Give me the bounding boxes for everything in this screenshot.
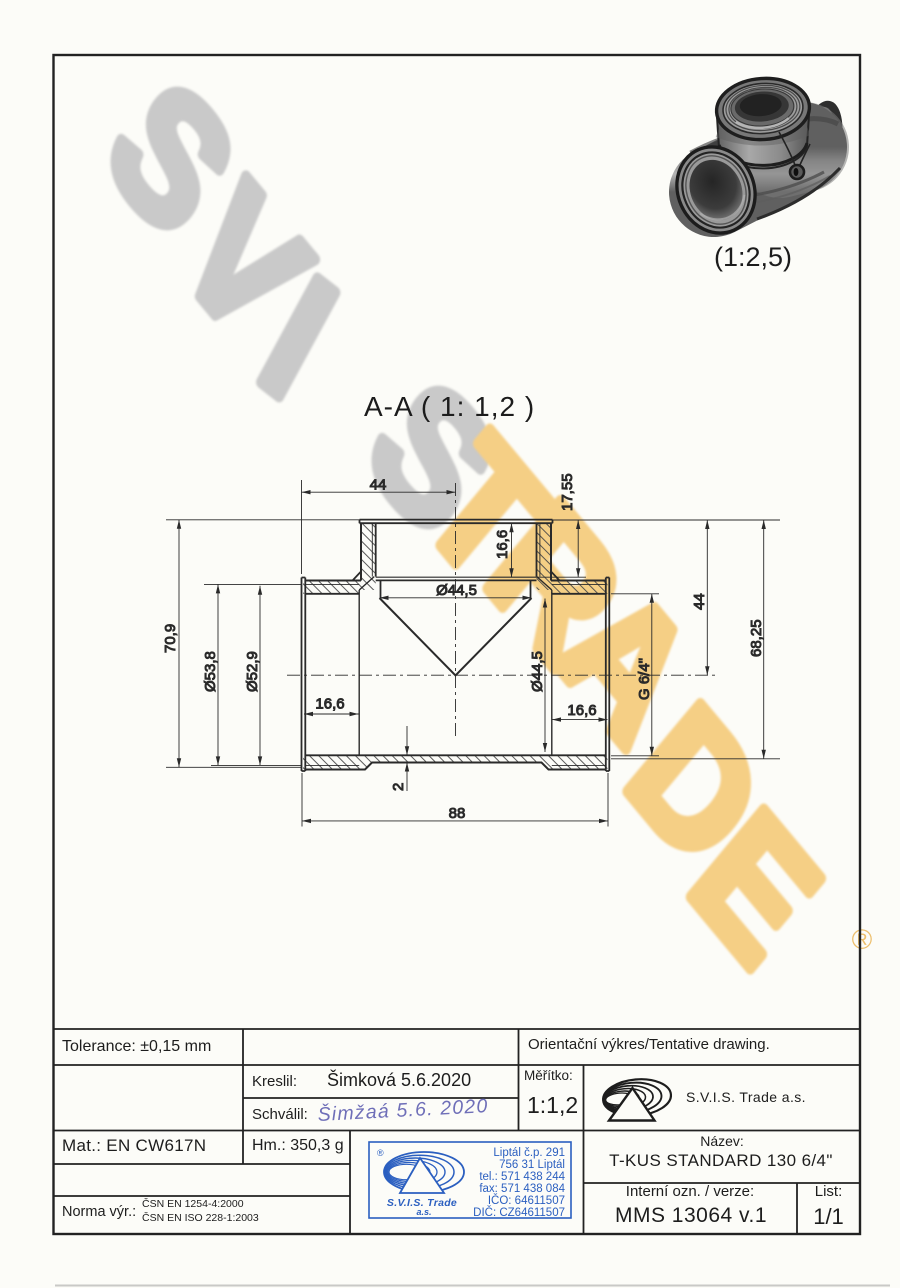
svg-text:Liptál č.p. 291: Liptál č.p. 291	[493, 1147, 565, 1159]
svg-text:16,6: 16,6	[567, 702, 596, 719]
svg-text:Mat.: EN CW617N: Mat.: EN CW617N	[62, 1136, 206, 1155]
svg-text:MMS 13064 v.1: MMS 13064 v.1	[615, 1204, 767, 1227]
svg-text:16,6: 16,6	[494, 530, 511, 559]
svg-text:(1:2,5): (1:2,5)	[714, 242, 792, 272]
svg-text:Orientační výkres/Tentative dr: Orientační výkres/Tentative drawing.	[528, 1036, 770, 1053]
svg-text:70,9: 70,9	[162, 624, 179, 653]
svg-text:Ø44,5: Ø44,5	[529, 651, 546, 692]
svg-text:Tolerance: ±0,15 mm: Tolerance: ±0,15 mm	[62, 1038, 211, 1055]
svg-text:fax: 571 438 084: fax: 571 438 084	[479, 1183, 565, 1195]
svg-text:ČSN EN 1254-4:2000: ČSN EN 1254-4:2000	[142, 1197, 244, 1210]
svg-text:44: 44	[691, 593, 708, 610]
svg-text:a.s.: a.s.	[416, 1207, 431, 1217]
svg-text:2: 2	[390, 783, 407, 791]
svg-text:®: ®	[852, 924, 873, 955]
svg-text:IČO: 64611507: IČO: 64611507	[488, 1194, 565, 1207]
svg-text:Měřítko:: Měřítko:	[524, 1068, 573, 1083]
svg-text:Kreslil:: Kreslil:	[252, 1073, 297, 1090]
svg-text:Ø53,8: Ø53,8	[202, 651, 219, 692]
svg-text:S.V.I.S. Trade a.s.: S.V.I.S. Trade a.s.	[686, 1089, 806, 1105]
svg-text:®: ®	[377, 1148, 384, 1158]
svg-text:88: 88	[449, 805, 466, 822]
svg-text:DIČ: CZ64611507: DIČ: CZ64611507	[473, 1206, 565, 1219]
svg-text:Norma výr.:: Norma výr.:	[62, 1204, 136, 1220]
svg-text:16,6: 16,6	[315, 696, 344, 713]
svg-text:Interní ozn. / verze:: Interní ozn. / verze:	[626, 1183, 754, 1200]
svg-text:Ø52,9: Ø52,9	[244, 651, 261, 692]
svg-text:List:: List:	[815, 1183, 843, 1200]
svg-text:Ø44,5: Ø44,5	[436, 582, 477, 599]
svg-text:Šimková 5.6.2020: Šimková 5.6.2020	[327, 1069, 471, 1090]
svg-text:ČSN EN ISO 228-1:2003: ČSN EN ISO 228-1:2003	[142, 1211, 259, 1224]
svg-text:Hm.: 350,3 g: Hm.: 350,3 g	[252, 1137, 344, 1154]
svg-text:A-A ( 1: 1,2 ): A-A ( 1: 1,2 )	[364, 391, 535, 422]
svg-text:1/1: 1/1	[813, 1204, 844, 1229]
svg-text:Název:: Název:	[700, 1133, 744, 1149]
svg-text:17,55: 17,55	[559, 473, 576, 511]
svg-text:44: 44	[370, 477, 387, 494]
svg-text:T-KUS STANDARD 130 6/4": T-KUS STANDARD 130 6/4"	[609, 1151, 833, 1170]
svg-text:68,25: 68,25	[748, 619, 765, 657]
svg-text:tel.: 571 438 244: tel.: 571 438 244	[479, 1171, 565, 1183]
svg-text:756 31 Liptál: 756 31 Liptál	[499, 1159, 565, 1171]
svg-text:G 6/4": G 6/4"	[636, 658, 653, 700]
svg-text:Schválil:: Schválil:	[252, 1106, 308, 1123]
svg-text:1:1,2: 1:1,2	[527, 1092, 578, 1118]
